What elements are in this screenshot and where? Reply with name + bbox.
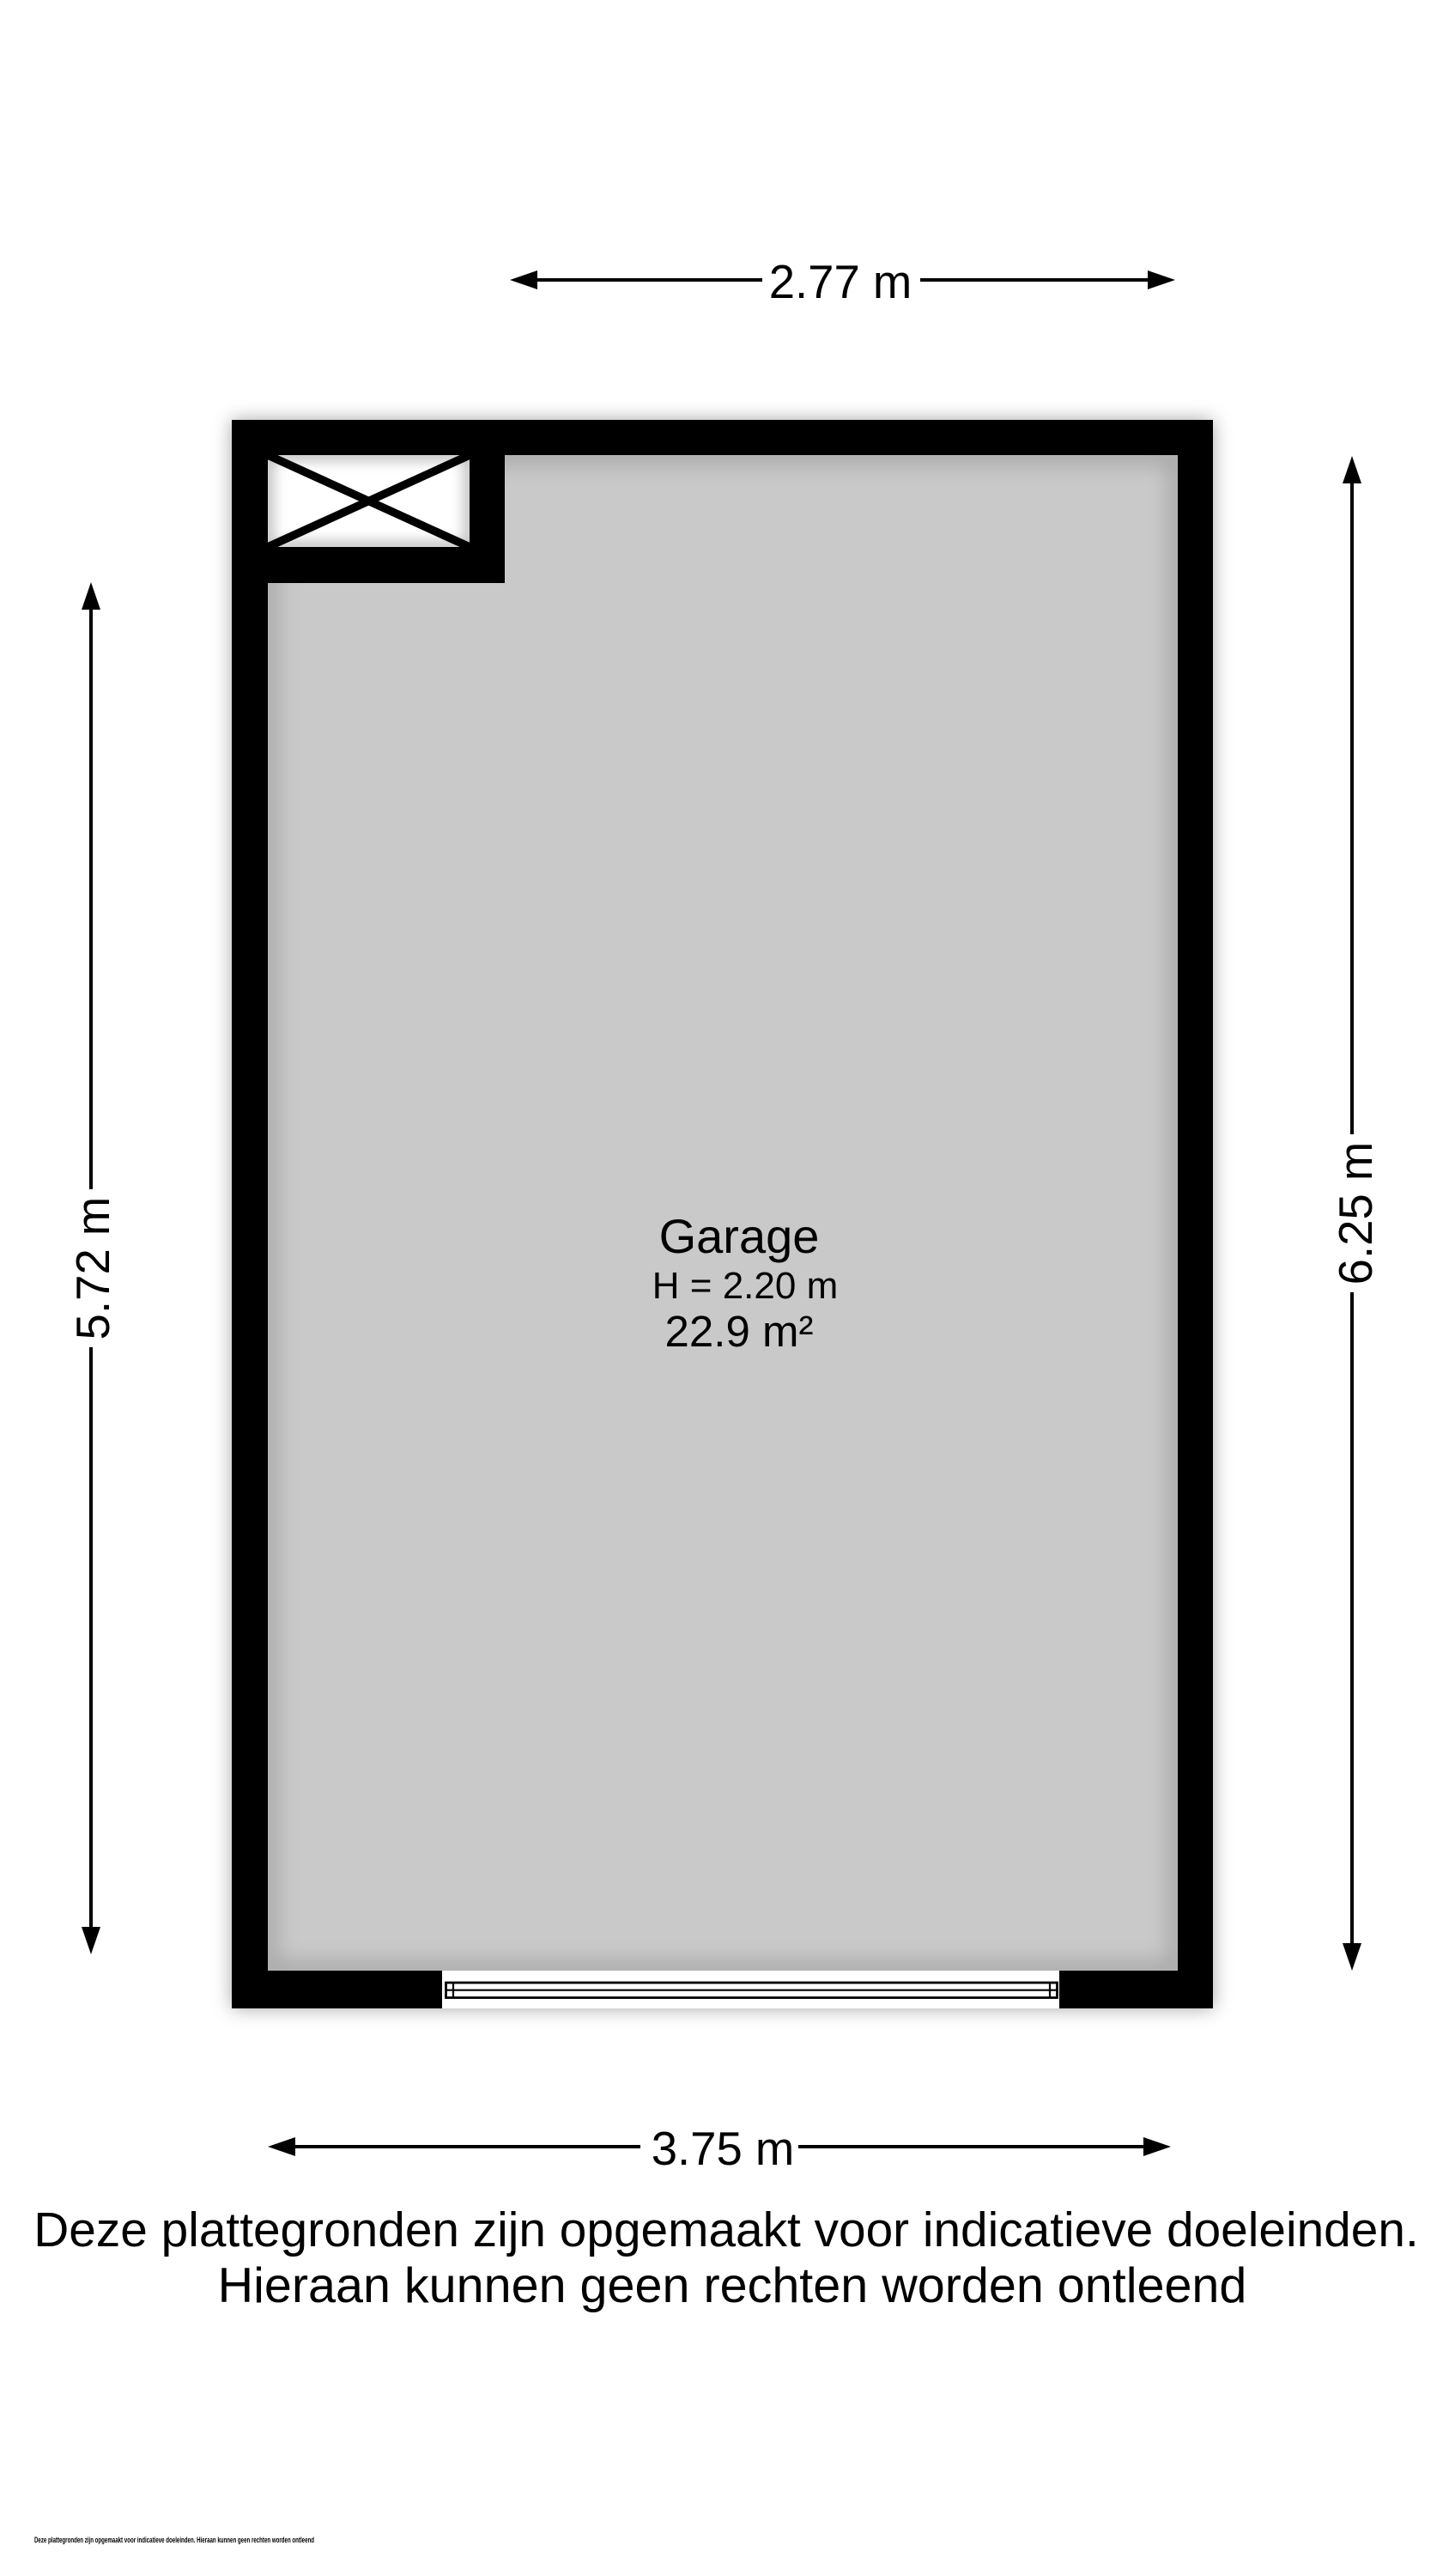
svg-text:6.25 m: 6.25 m <box>1330 1142 1382 1285</box>
svg-text:Garage: Garage <box>659 1209 820 1263</box>
svg-text:3.75 m: 3.75 m <box>652 2123 795 2175</box>
svg-text:Deze plattegronden zijn opgema: Deze plattegronden zijn opgemaakt voor i… <box>33 2203 1418 2257</box>
svg-text:Hieraan kunnen geen rechten wo: Hieraan kunnen geen rechten worden ontle… <box>218 2258 1247 2313</box>
svg-text:22.9 m²: 22.9 m² <box>665 1307 814 1356</box>
svg-text:Deze plattegronden zijn opgema: Deze plattegronden zijn opgemaakt voor i… <box>34 2536 314 2545</box>
svg-text:H = 2.20 m: H = 2.20 m <box>652 1265 838 1307</box>
svg-text:5.72 m: 5.72 m <box>67 1197 119 1340</box>
svg-text:2.77 m: 2.77 m <box>769 256 912 308</box>
